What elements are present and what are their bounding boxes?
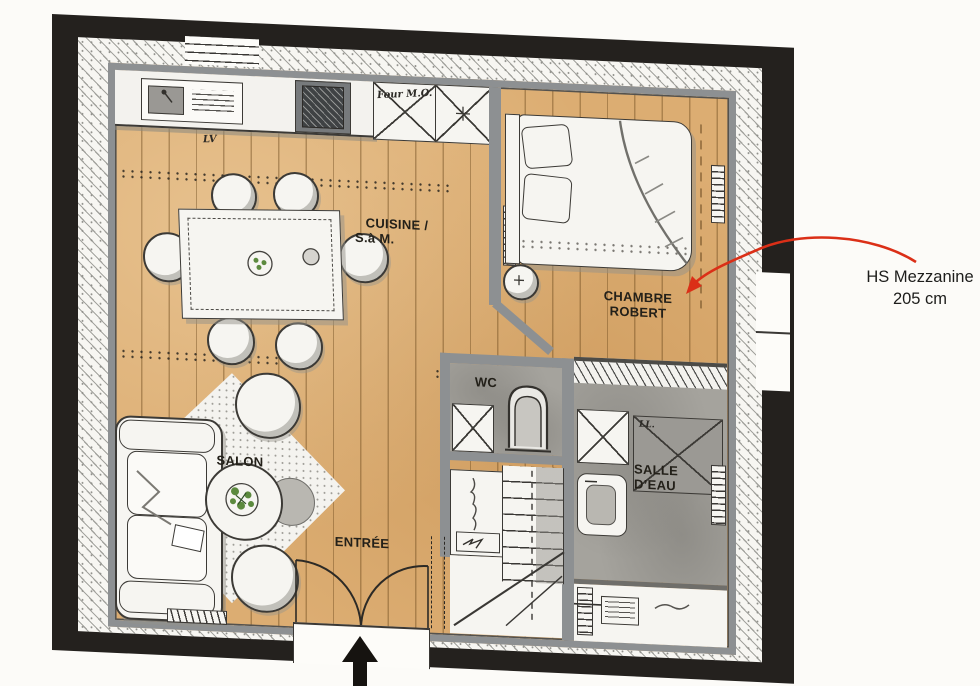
cooktop-hob (302, 85, 344, 129)
divider-wall (489, 87, 501, 306)
room-label-wc: WC (466, 374, 506, 391)
interior-area: Four M.O. LV (108, 63, 736, 656)
electric-meter (456, 531, 500, 553)
cooktop (295, 80, 351, 135)
room-label-cuisine: CUISINE / S.à M. (327, 213, 467, 250)
window-top (185, 36, 259, 67)
floor-threshold-dashes (431, 536, 432, 628)
armchair (231, 543, 299, 614)
mezzanine-annotation-line2: 205 cm (858, 288, 980, 310)
entry-door-leaves (296, 560, 428, 630)
bathroom-lower-area (574, 584, 727, 648)
room-label-salle-eau: SALLE D’EAU (616, 461, 754, 498)
angled-wall (495, 303, 551, 352)
sofa (115, 415, 223, 624)
pillow (521, 173, 572, 224)
wc-cabinet (452, 403, 494, 453)
entry-door-arcs (296, 560, 428, 632)
floor-plan: Four M.O. LV (52, 14, 794, 684)
salon-radiator (167, 608, 227, 625)
dining-table (178, 209, 344, 321)
mezzanine-annotation: HS Mezzanine 205 cm (858, 266, 980, 311)
window-right-mullion (756, 331, 790, 334)
oven-microwave-label: Four M.O. (377, 88, 433, 101)
scanned-floor-plan-page: Four M.O. LV (0, 0, 980, 686)
entry-door-gap (293, 622, 430, 669)
bedside-stool (503, 263, 539, 301)
dishwasher-label: LV (203, 134, 217, 145)
sink-basin (148, 85, 184, 115)
shower (577, 409, 629, 465)
dining-table-inner (187, 218, 334, 312)
mezzanine-annotation-line1: HS Mezzanine (858, 266, 980, 288)
towel-radiator (577, 587, 593, 636)
room-label-entree: ENTRÉE (302, 532, 422, 553)
kitchen-counter (115, 70, 377, 138)
washbasin-bowl (586, 484, 616, 525)
dining-chair (207, 316, 255, 366)
washer-label: LL. (639, 420, 655, 431)
bed-headboard (505, 114, 520, 265)
radiator (711, 165, 725, 224)
pillow (521, 124, 574, 170)
floor-threshold-dashes (444, 537, 445, 629)
dining-chair (275, 321, 323, 371)
sofa-armrest (119, 419, 215, 453)
socket-box (601, 596, 639, 626)
room-label-chambre: CHAMBRE ROBERT (578, 287, 698, 323)
window-right (756, 272, 790, 392)
staircase (502, 465, 564, 584)
kitchen-tall-cabinet (435, 84, 493, 145)
sink-drainer (192, 89, 234, 115)
kitchen-sink (141, 78, 243, 125)
